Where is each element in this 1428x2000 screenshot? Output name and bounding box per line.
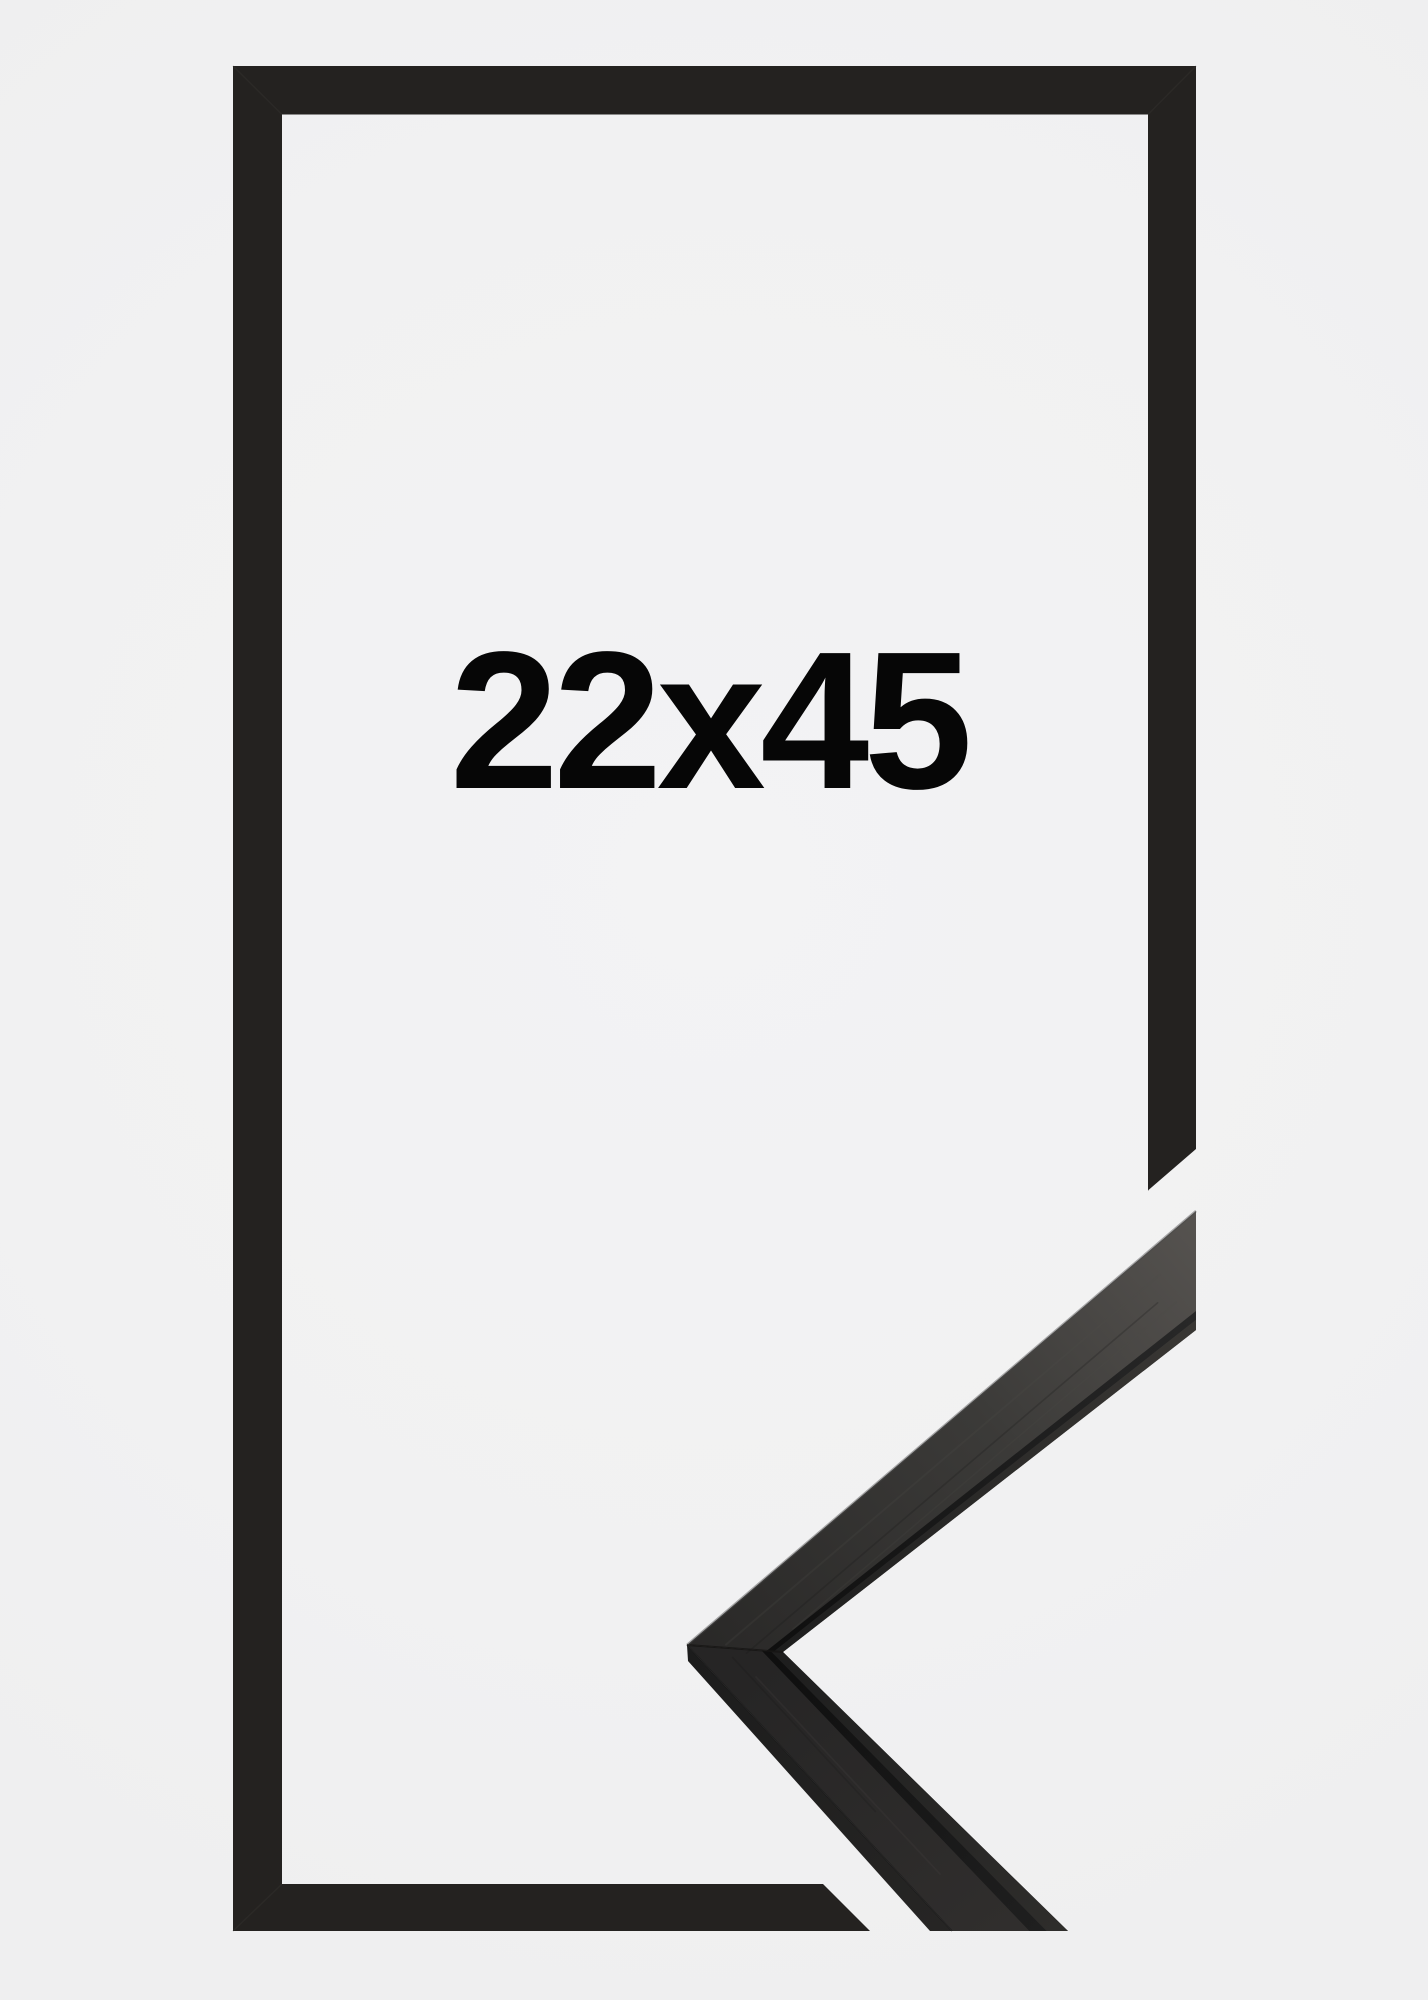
svg-text:22x45: 22x45 (450, 611, 968, 830)
